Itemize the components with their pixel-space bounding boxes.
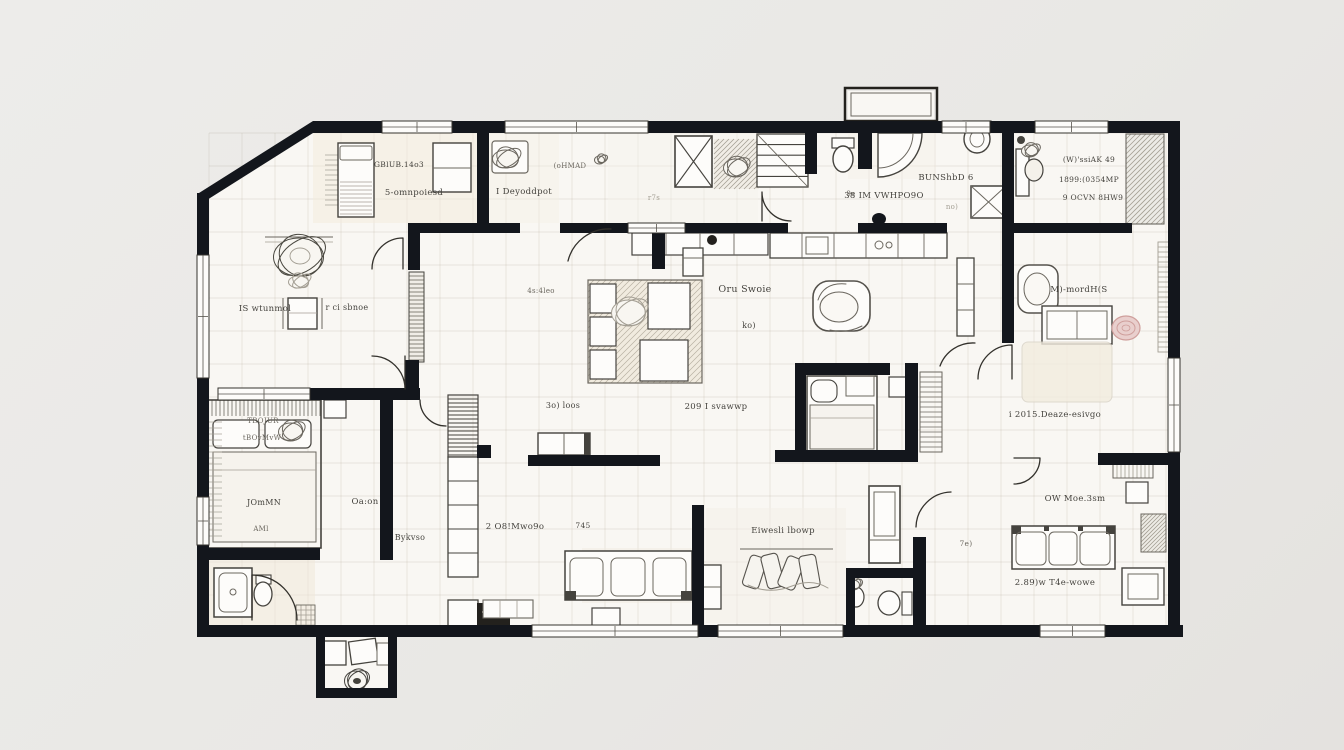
floor-plan-stage: Hand-sketched residential floor plan, to… [0,0,1344,750]
sofa-cap-left [565,591,576,600]
pouf-pink [1112,316,1140,340]
rect-shape [805,133,817,174]
window [942,121,990,133]
window [718,625,843,637]
label-entry-small: (oHMAD [554,162,587,170]
rect-shape [846,568,855,625]
dining-table-a [648,283,690,329]
door-knob-blob [707,235,717,245]
label-dining2-b: 745 [575,521,590,530]
rect-shape [846,568,922,578]
rect-shape [197,193,209,255]
label-wardrobe-small: 4s:4leo [527,287,555,295]
label-bedroom1-a: GBlUB.14o3 [374,160,424,169]
label-bedroom2-b: tBOvMvW [243,434,282,442]
rect-shape [380,388,393,560]
scribble-ring [493,150,519,168]
window [532,625,698,637]
sofa-cap-right [681,591,692,600]
rect-shape [197,378,209,497]
label-bedroom2-e: Oa:on [352,497,379,507]
rect-shape [775,450,915,462]
window [628,223,685,233]
label-small-2: 9e [846,190,855,198]
nightstand2 [324,400,346,418]
utility-box1 [322,641,346,665]
study-lamp [1017,136,1025,144]
label-hall-a: 3o) loos [546,401,580,410]
window [382,121,452,133]
label-bedroom1-b: 5-omnpoiesd [385,188,444,198]
label-entry: I Deyoddpot [496,187,552,197]
dining-table-b [640,340,688,381]
utility-round-core [353,678,361,684]
label-right-living-a: M)-mordH(S [1050,284,1107,295]
rect-shape [390,625,532,637]
rect-shape [316,688,397,698]
lounge-chair-seat [820,292,858,322]
rect-shape [405,360,419,390]
window [1168,358,1180,452]
counter-bottom [483,600,533,618]
rect-shape [692,505,704,627]
stairs-lower [448,457,478,577]
rect-shape [843,625,1040,637]
label-study-1: (W)'ssiAK 49 [1063,155,1115,164]
kitchenette-white [448,600,478,626]
window [197,497,209,545]
rect-shape [1098,453,1168,465]
label-study-3: 9 OCVN 8HW9 [1063,193,1124,202]
label-dining2-a: 2 O8!Mwo9o [486,522,545,532]
rect-shape [1044,526,1049,531]
toilet3-bowl [254,582,272,606]
rect-shape [1078,526,1083,531]
bed3-nightstand [889,377,907,397]
label-small-3: no) [946,203,958,211]
hall-bench-cap [584,433,590,455]
label-living1-a: IS wtunmol [239,304,291,314]
label-bedroom2-a: TBOJUR [247,417,279,425]
rect-shape [408,223,420,270]
bed1-pillow [340,146,372,160]
side-table [592,608,620,626]
label-bottomright-a: OW Moe.3sm [1045,494,1106,504]
small-cabinet [1126,482,1148,503]
rect-shape [477,445,491,458]
rect-shape [310,388,420,400]
rect-shape [1002,133,1014,343]
rect-shape [858,133,872,169]
rect-shape [388,631,397,697]
rect-shape [1168,121,1180,358]
toilet4-bowl [878,591,900,615]
cabinet-hatch2 [1141,514,1166,552]
rect-shape [316,631,325,697]
rect-shape [795,363,890,375]
rect-shape [197,625,390,637]
window [1040,625,1105,637]
armchair2-seat [1024,273,1050,305]
hatch-bg [409,272,424,362]
wc-bowl [833,146,853,172]
label-kitchen-a: BUNShbD 6 [918,173,973,183]
label-closet: Eiwesli lbowp [751,526,815,536]
label-hall-b: Bykvso [395,533,426,542]
rect-shape [685,223,788,233]
square-table [288,298,317,329]
label-living-mid-sub: ko) [742,321,756,330]
rect-shape [197,548,320,560]
stairs-border [448,457,478,577]
hall-cabinet [683,248,703,276]
rect-shape [905,363,918,462]
label-bedroom2-c: JOmMN [246,498,281,507]
rug-right [1022,342,1112,402]
rect-shape [528,455,660,466]
label-nook: 7e) [959,539,972,548]
label-bedroom-mid: 209 I svawwp [685,402,748,412]
sofa2-arm-left [1012,526,1021,534]
hall-wardrobe [409,272,424,362]
utility-box2 [349,638,379,665]
study-chair [1025,159,1043,181]
rect-shape [408,223,520,233]
window [1035,121,1108,133]
rect-shape [913,537,926,627]
window [197,255,209,378]
study-wardrobe [1126,134,1164,224]
dining-chair3 [590,350,616,379]
rect-shape [477,133,489,225]
label-right-living-b: i 2015.Deaze-esivgo [1009,410,1101,420]
rect-shape [795,367,806,457]
label-bedroom2-d: AMl [252,525,269,533]
rect-shape [858,223,947,233]
label-small-1: r7s [648,194,660,202]
window [218,388,310,400]
window [505,121,648,133]
kitchen-counter [770,233,947,258]
floor-plan-drawing: GBlUB.14o35-omnpoiesdI Deyoddpot(oHMADBU… [0,0,1344,750]
label-living-mid: Oru Swoie [718,284,771,295]
label-bottomright-b: 2.89)w T4e-wowe [1015,577,1095,588]
rect-shape [1105,625,1183,637]
label-kitchen-b: 38 IM VWHPO9O [844,191,924,201]
label-study-2: 1899:(0354MP [1059,175,1119,184]
toilet4-tank [902,592,912,615]
label-living1-b: r ci sbnoe [326,303,369,312]
bed3-blanket [810,405,874,449]
tall-cabinet [957,258,974,336]
rect-shape [1168,452,1180,637]
dining-chair2 [590,317,616,346]
rect-shape [1012,223,1132,233]
